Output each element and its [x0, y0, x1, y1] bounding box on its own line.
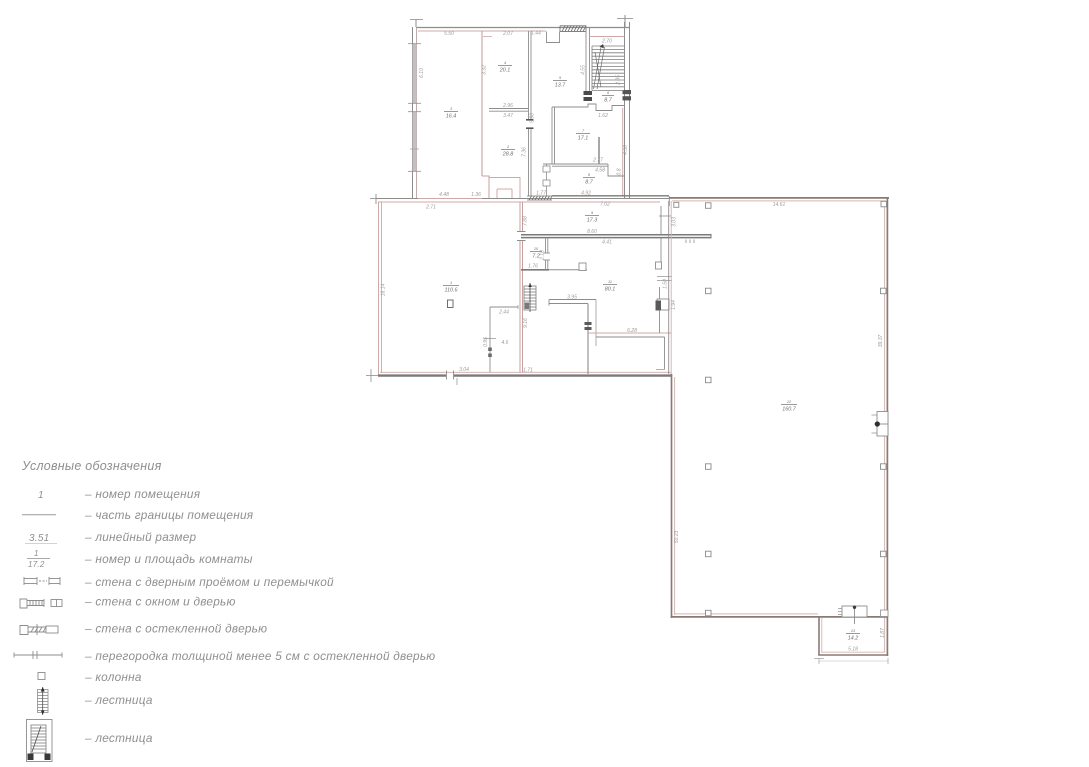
svg-text:20.1: 20.1	[499, 68, 511, 74]
svg-text:4.50: 4.50	[623, 145, 629, 155]
svg-text:5.50: 5.50	[444, 31, 454, 37]
svg-text:1: 1	[450, 281, 452, 285]
svg-text:4.48: 4.48	[439, 192, 449, 198]
svg-text:2.07: 2.07	[502, 31, 513, 37]
svg-text:4.41: 4.41	[602, 240, 612, 246]
svg-text:16.4: 16.4	[446, 114, 457, 120]
svg-text:2.18: 2.18	[540, 250, 546, 261]
svg-text:3.03: 3.03	[672, 217, 678, 227]
svg-text:8.7: 8.7	[585, 180, 593, 186]
svg-text:7.88: 7.88	[523, 216, 529, 226]
svg-text:110.6: 110.6	[444, 288, 457, 294]
svg-text:– часть границы помещения: – часть границы помещения	[84, 508, 254, 522]
svg-text:9.16: 9.16	[523, 318, 529, 328]
svg-text:1.44: 1.44	[531, 31, 541, 37]
svg-text:13.7: 13.7	[555, 83, 566, 89]
svg-text:4.55: 4.55	[581, 65, 587, 75]
svg-text:2.96: 2.96	[502, 103, 513, 109]
svg-text:– стена с дверным проёмом и пе: – стена с дверным проёмом и перемычкой	[84, 575, 334, 589]
svg-text:1.36: 1.36	[471, 192, 481, 198]
svg-text:– колонна: – колонна	[84, 670, 142, 684]
svg-text:39.37: 39.37	[878, 335, 884, 348]
svg-text:– стена с окном и дверью: – стена с окном и дверью	[84, 595, 236, 609]
svg-text:6.28: 6.28	[627, 328, 637, 334]
svg-text:4.6: 4.6	[502, 340, 509, 346]
svg-text:50.23: 50.23	[674, 531, 680, 544]
svg-text:28.8: 28.8	[502, 152, 514, 158]
svg-text:7.36: 7.36	[522, 147, 528, 157]
svg-text:4: 4	[504, 61, 506, 65]
svg-text:14.2: 14.2	[848, 636, 859, 642]
svg-text:0.95: 0.95	[483, 337, 489, 347]
svg-text:3.95: 3.95	[567, 295, 577, 301]
svg-text:– лестница: – лестница	[84, 731, 153, 745]
svg-text:– стена с остекленной дверью: – стена с остекленной дверью	[84, 622, 267, 636]
svg-text:80.1: 80.1	[605, 287, 616, 293]
svg-text:2.44: 2.44	[498, 310, 509, 316]
svg-text:1: 1	[38, 490, 44, 501]
svg-text:2.70: 2.70	[601, 39, 612, 45]
svg-text:16.14: 16.14	[381, 284, 387, 297]
svg-text:9.90: 9.90	[530, 113, 536, 123]
svg-text:– перегородка толщиной менее 5: – перегородка толщиной менее 5 см с осте…	[84, 649, 435, 663]
svg-text:4.58: 4.58	[595, 168, 605, 174]
svg-text:1.76: 1.76	[528, 264, 538, 270]
svg-text:– линейный размер: – линейный размер	[84, 530, 197, 544]
svg-text:14.61: 14.61	[773, 202, 786, 208]
svg-text:3.04: 3.04	[459, 367, 469, 373]
svg-text:11: 11	[608, 280, 612, 284]
svg-text:1: 1	[34, 549, 39, 558]
svg-text:1.71: 1.71	[523, 368, 533, 374]
svg-text:4.92: 4.92	[581, 191, 591, 197]
svg-text:2.85: 2.85	[616, 75, 622, 86]
svg-text:– лестница: – лестница	[84, 693, 153, 707]
svg-text:1.62: 1.62	[598, 113, 608, 119]
svg-text:Условные обозначения: Условные обозначения	[21, 459, 162, 473]
svg-text:2.71: 2.71	[425, 205, 436, 211]
svg-text:5.18: 5.18	[848, 647, 858, 653]
svg-text:8.60: 8.60	[587, 229, 597, 235]
svg-text:3.47: 3.47	[503, 113, 513, 119]
svg-text:6.10: 6.10	[419, 68, 425, 78]
svg-text:3.32: 3.32	[482, 65, 488, 75]
svg-text:2.77: 2.77	[592, 158, 603, 164]
svg-text:– номер помещения: – номер помещения	[84, 487, 201, 501]
svg-text:1.50: 1.50	[663, 279, 669, 289]
svg-text:8.7: 8.7	[604, 98, 612, 104]
svg-text:3.51: 3.51	[29, 533, 49, 544]
svg-text:1.87: 1.87	[880, 628, 886, 638]
svg-text:1.77: 1.77	[536, 191, 546, 197]
svg-text:1.94: 1.94	[671, 300, 677, 310]
svg-text:– номер и площадь комнаты: – номер и площадь комнаты	[84, 552, 253, 566]
svg-text:17.2: 17.2	[28, 560, 45, 569]
svg-text:7.02: 7.02	[600, 202, 610, 208]
svg-text:17.1: 17.1	[578, 136, 589, 142]
svg-text:17.3: 17.3	[587, 218, 598, 224]
svg-text:0.8: 0.8	[617, 168, 623, 175]
svg-text:160.7: 160.7	[782, 407, 796, 413]
